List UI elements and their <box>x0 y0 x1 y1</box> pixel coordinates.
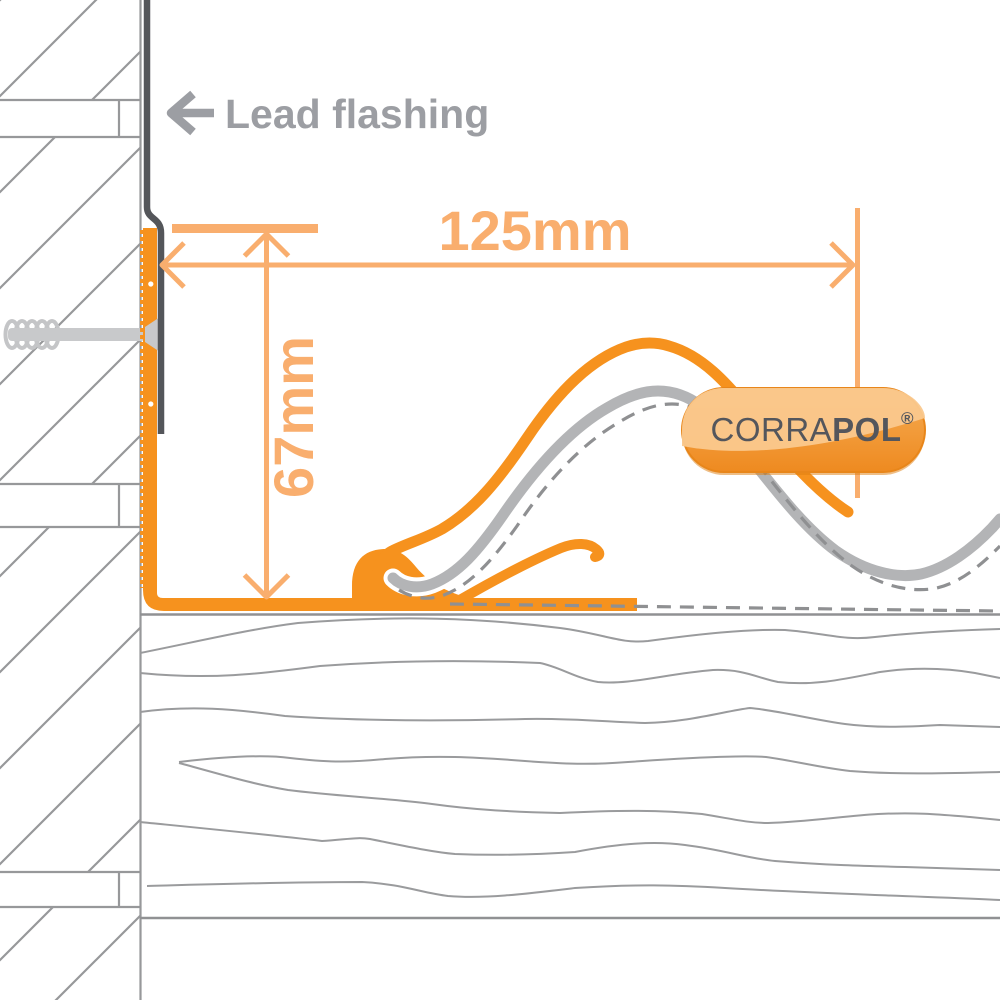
flashing-diagram: 125mm 67mm Lead flashing CORRAPOL ® <box>0 0 1000 1000</box>
wood-grain-line <box>140 822 1000 870</box>
brand-regular: CORRA <box>710 411 832 448</box>
wood-grain-line <box>140 618 1000 653</box>
dimension-reference-tick <box>172 224 318 233</box>
mortar-joint-band-1 <box>0 100 140 137</box>
arrow-left-icon <box>171 94 214 132</box>
wall-section <box>0 0 141 1000</box>
wood-grain-line <box>147 882 1000 900</box>
corrapol-badge: CORRAPOL ® <box>682 388 925 475</box>
width-dimension-label: 125mm <box>438 199 631 262</box>
wood-grain-line <box>140 661 1000 683</box>
fixing-hole <box>148 281 153 286</box>
screw-shaft <box>8 328 145 341</box>
registered-trademark-icon: ® <box>901 409 914 428</box>
lead-flashing-note: Lead flashing <box>171 91 489 137</box>
wood-grain-line <box>140 708 1000 727</box>
wood-grain-line <box>179 756 1000 773</box>
lead-flashing-label: Lead flashing <box>225 91 489 137</box>
mortar-joint-band-2 <box>0 484 140 527</box>
badge-brand-text: CORRAPOL <box>710 411 901 448</box>
dimension-67mm: 67mm <box>172 224 325 597</box>
mortar-joint-band-3 <box>0 872 140 907</box>
brand-bold: POL <box>832 411 901 448</box>
diagram-canvas: 125mm 67mm Lead flashing CORRAPOL ® <box>0 0 1000 1000</box>
height-dimension-label: 67mm <box>262 336 325 498</box>
timber-deck <box>140 615 1000 919</box>
fixing-hole <box>148 401 153 406</box>
